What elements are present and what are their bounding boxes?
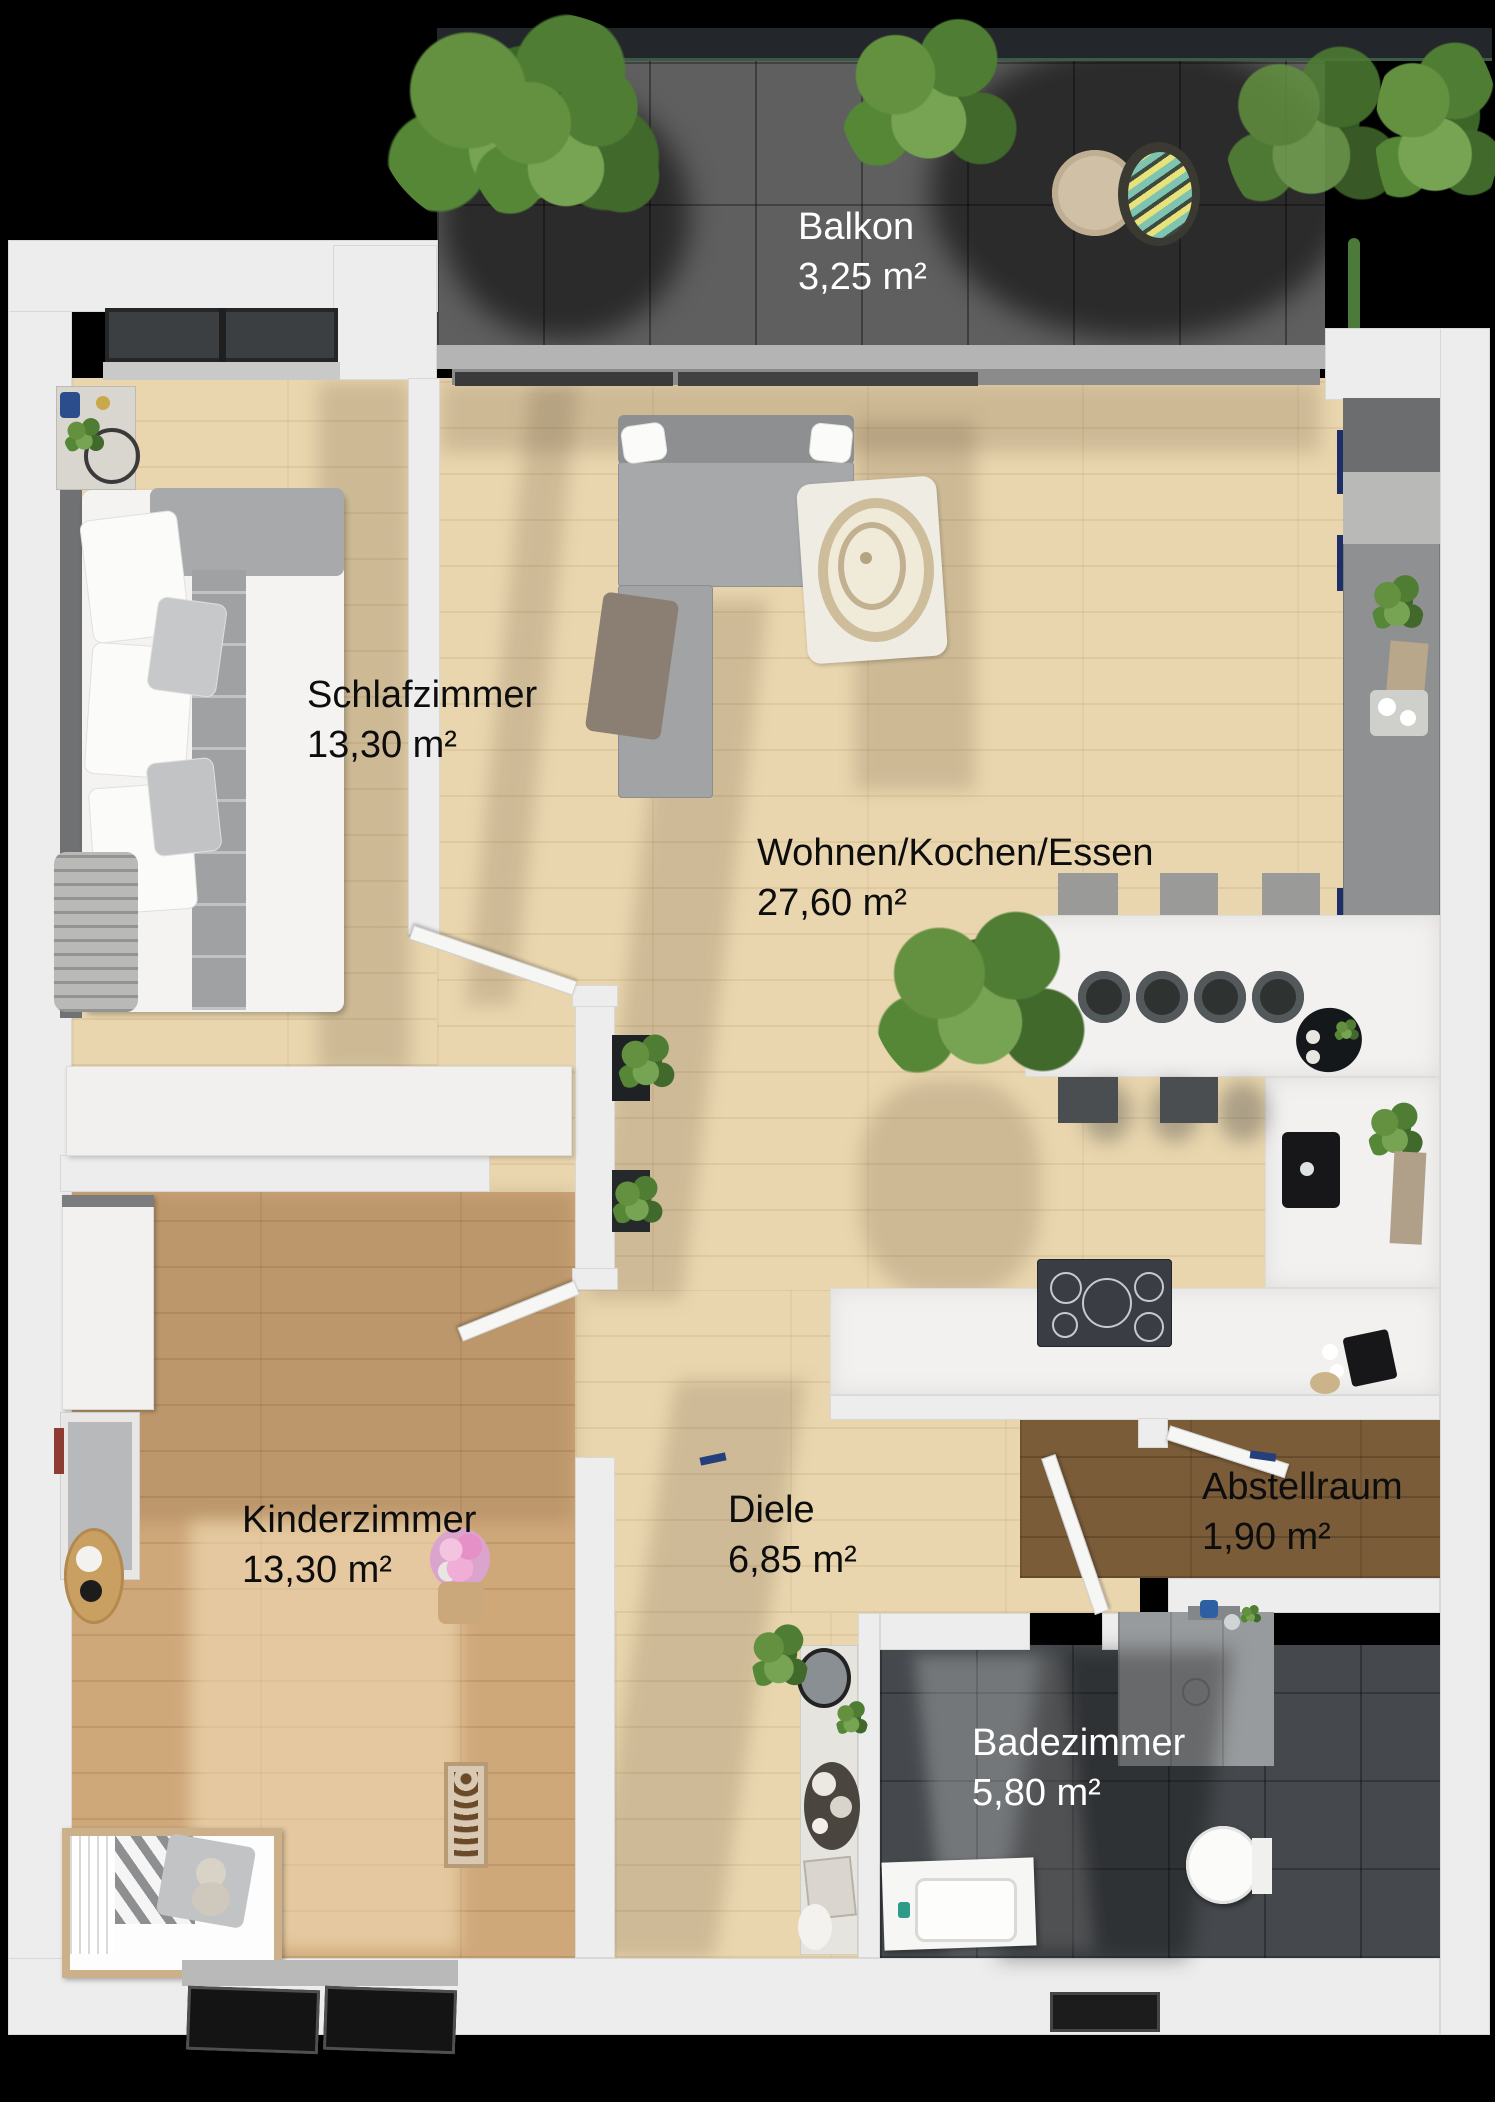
floor-shadow — [860, 1080, 1040, 1295]
wall-kinder-diele — [575, 1457, 615, 1958]
tray-cup — [1306, 1050, 1320, 1064]
burner — [1134, 1272, 1164, 1302]
bed-pillow-gray — [146, 596, 228, 699]
coffee-machine — [1342, 1329, 1397, 1387]
room-label-abstellraum: Abstellraum 1,90 m² — [1202, 1462, 1403, 1562]
shower-plant — [1240, 1604, 1262, 1626]
tray-plate — [830, 1796, 852, 1818]
room-area: 13,30 m² — [307, 720, 537, 770]
wall-bad-nord — [880, 1613, 1030, 1650]
desk-plant — [64, 416, 106, 458]
plant — [618, 1030, 676, 1100]
room-name: Badezimmer — [972, 1718, 1185, 1768]
cabinet-handle — [1337, 430, 1343, 494]
bathroom-window — [1050, 1992, 1160, 2032]
plant — [612, 1172, 664, 1234]
window — [323, 1986, 457, 2055]
room-name: Diele — [728, 1485, 857, 1535]
coffee-cup — [1322, 1344, 1338, 1360]
balcony-plant — [470, 60, 670, 240]
toilet-cistern — [1252, 1838, 1272, 1894]
room-area: 27,60 m² — [757, 878, 1153, 928]
lounge-ring-chair-center — [860, 552, 872, 564]
room-area: 3,25 m² — [798, 252, 927, 302]
room-area: 13,30 m² — [242, 1545, 476, 1595]
wall-schlafzimmer-wohnen — [408, 378, 440, 935]
wardrobe-top — [62, 1195, 154, 1207]
door-jamb — [572, 1268, 618, 1290]
burner — [1052, 1312, 1078, 1338]
bar-stool — [1136, 971, 1188, 1023]
door-jamb — [572, 985, 618, 1007]
window — [186, 1986, 320, 2055]
wardrobe — [62, 1195, 154, 1410]
wall-center — [575, 985, 615, 1290]
sliding-door-sill — [437, 345, 1325, 369]
floorplan: Balkon 3,25 m² — [0, 0, 1495, 2102]
bed-pillow-gray — [145, 757, 222, 858]
burner — [1050, 1272, 1082, 1304]
room-area: 1,90 m² — [1202, 1512, 1403, 1562]
bar-stool — [1252, 971, 1304, 1023]
plate — [76, 1546, 102, 1572]
tray-plate — [812, 1772, 836, 1796]
sliding-door-frame — [455, 372, 673, 386]
room-area: 6,85 m² — [728, 1535, 857, 1585]
window-sill — [103, 362, 340, 380]
hall-plant — [752, 1618, 808, 1702]
plant-stem — [1348, 238, 1360, 333]
teddy-bear-body — [192, 1882, 230, 1916]
counter-plant — [1372, 570, 1424, 642]
shower-head — [1224, 1614, 1240, 1630]
cup-black — [80, 1580, 102, 1602]
side-table — [64, 1528, 124, 1624]
room-name: Wohnen/Kochen/Essen — [757, 828, 1153, 878]
toilet — [1186, 1826, 1260, 1904]
room-label-kinderzimmer: Kinderzimmer 13,30 m² — [242, 1495, 476, 1595]
sink-faucet — [1300, 1162, 1314, 1176]
desk-accessory-gold — [96, 396, 110, 410]
wall-top-pillar — [333, 245, 437, 380]
desk-accessory — [60, 392, 80, 418]
room-name: Abstellraum — [1202, 1462, 1403, 1512]
stool-shadow — [1218, 1082, 1268, 1142]
window-sill — [182, 1960, 458, 1986]
dining-chair — [1058, 1077, 1118, 1123]
room-name: Kinderzimmer — [242, 1495, 476, 1545]
room-label-badezimmer: Badezimmer 5,80 m² — [972, 1718, 1185, 1818]
door-jamb — [1138, 1418, 1168, 1448]
shower-valve-blue — [1200, 1600, 1218, 1618]
dried-flowers — [1310, 1372, 1340, 1394]
hanging-chair-cushion — [1128, 152, 1192, 238]
room-label-schlafzimmer: Schlafzimmer 13,30 m² — [307, 670, 537, 770]
crib-canopy — [70, 1836, 114, 1954]
hall-plant-small — [836, 1698, 868, 1742]
sideboard — [66, 1066, 572, 1156]
sliding-door-frame — [678, 372, 978, 386]
monstera-plant — [872, 905, 1097, 1100]
sofa-pillow — [620, 421, 669, 465]
balcony-plant — [840, 10, 1025, 195]
cutting-board — [1390, 1151, 1427, 1245]
room-area: 5,80 m² — [972, 1768, 1185, 1818]
balcony-plant — [1375, 25, 1495, 240]
bowl — [1400, 710, 1416, 726]
room-name: Schlafzimmer — [307, 670, 537, 720]
soap-teal — [898, 1902, 910, 1918]
room-label-diele: Diele 6,85 m² — [728, 1485, 857, 1585]
bar-stool — [1194, 971, 1246, 1023]
toy-red — [54, 1428, 64, 1474]
wall-kueche-sued — [830, 1395, 1440, 1420]
cabinet-handle — [1337, 535, 1343, 591]
sofa-pillow — [808, 422, 854, 464]
lounge-ring-chair-inner — [838, 522, 906, 610]
room-label-balkon: Balkon 3,25 m² — [798, 202, 927, 302]
bedroom-rug — [54, 852, 138, 1012]
counter-tray — [1370, 690, 1428, 736]
bowl — [1378, 698, 1396, 716]
vase — [798, 1904, 832, 1950]
kitchen-fridge — [1343, 398, 1440, 472]
room-label-wohnen: Wohnen/Kochen/Essen 27,60 m² — [757, 828, 1153, 928]
bar-chair — [1160, 873, 1218, 915]
toy-bench-beads — [454, 1772, 478, 1858]
washbasin — [915, 1878, 1017, 1942]
kitchen-unit-light — [1343, 472, 1440, 544]
dining-chair — [1160, 1077, 1218, 1123]
wall-schlafzimmer-kinder — [60, 1155, 490, 1192]
window-mullion — [219, 308, 226, 362]
wall-right — [1440, 328, 1490, 2035]
tray-cup — [1306, 1030, 1320, 1044]
wall-bad-west — [858, 1613, 880, 1958]
burner — [1134, 1312, 1164, 1342]
tray-cup — [812, 1818, 828, 1834]
tray-herb — [1334, 1018, 1360, 1044]
bar-chair — [1262, 873, 1320, 915]
burner-center — [1082, 1278, 1132, 1328]
room-name: Balkon — [798, 202, 927, 252]
